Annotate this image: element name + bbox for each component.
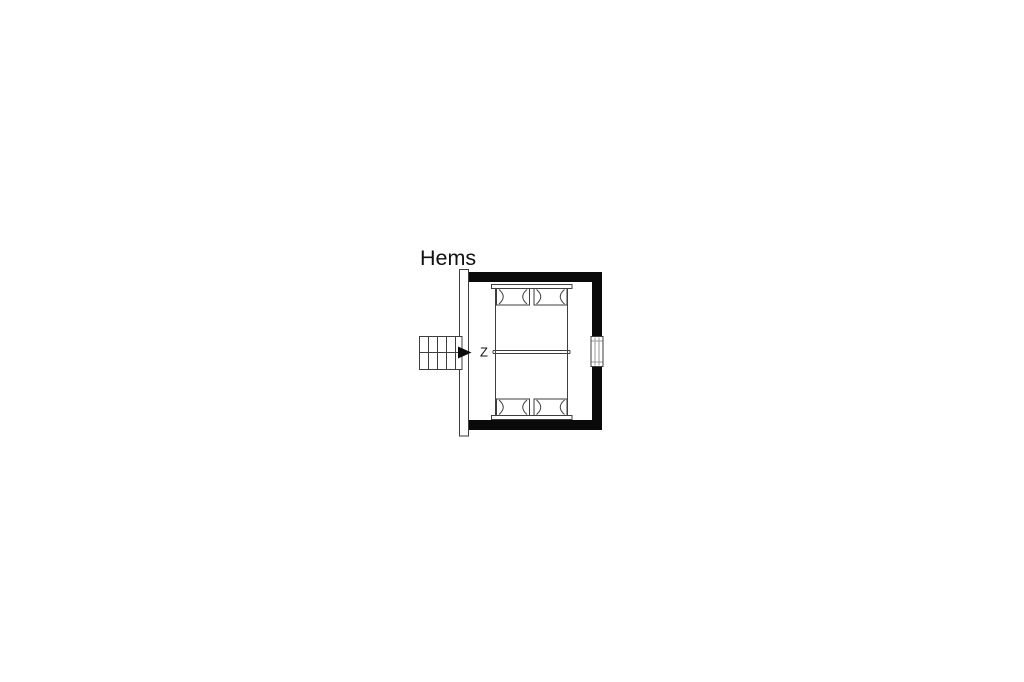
pillow-bottom-right <box>534 399 567 416</box>
beds <box>492 285 573 420</box>
room-title: Hems <box>420 246 476 270</box>
pillow-top-right <box>534 289 567 306</box>
window <box>591 337 603 367</box>
wall-top <box>469 272 602 282</box>
bed-headboard-bottom <box>492 416 573 420</box>
wall-bottom <box>469 420 602 430</box>
pillow-top-left <box>497 289 530 306</box>
bed-headboard-top <box>492 285 573 289</box>
floor-plan: Hems Z <box>0 0 1024 682</box>
floor-plan-canvas: Hems Z <box>0 0 1024 682</box>
pillow-bottom-left <box>497 399 530 416</box>
stair-label: Z <box>480 345 488 360</box>
